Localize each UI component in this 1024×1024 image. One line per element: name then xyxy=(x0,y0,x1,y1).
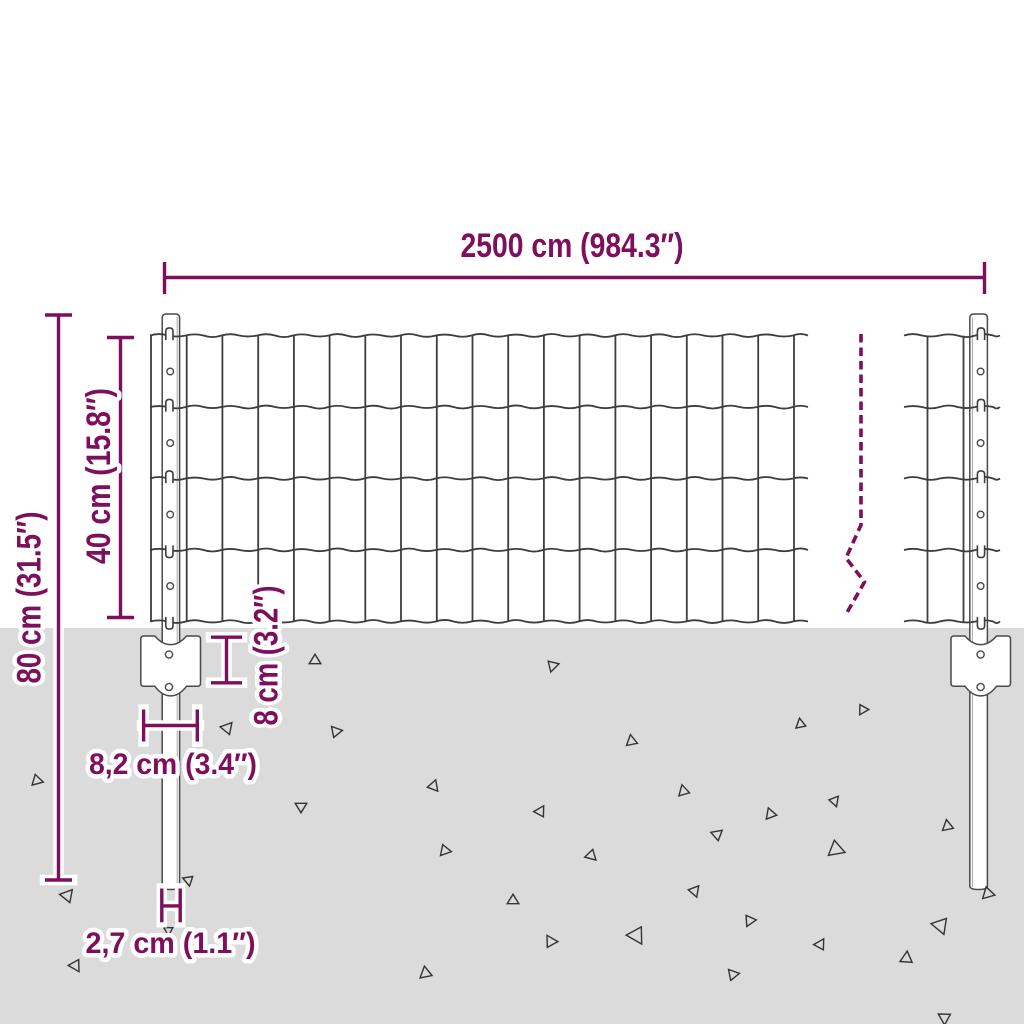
svg-text:2500 cm (984.3″): 2500 cm (984.3″) xyxy=(461,227,684,265)
svg-text:8,2 cm (3.4″): 8,2 cm (3.4″) xyxy=(89,748,257,781)
svg-text:80 cm (31.5″): 80 cm (31.5″) xyxy=(11,512,49,684)
svg-text:40 cm (15.8″): 40 cm (15.8″) xyxy=(80,388,118,564)
svg-text:2,7 cm (1.1″): 2,7 cm (1.1″) xyxy=(86,927,256,960)
svg-text:8 cm (3.2″): 8 cm (3.2″) xyxy=(248,586,286,726)
